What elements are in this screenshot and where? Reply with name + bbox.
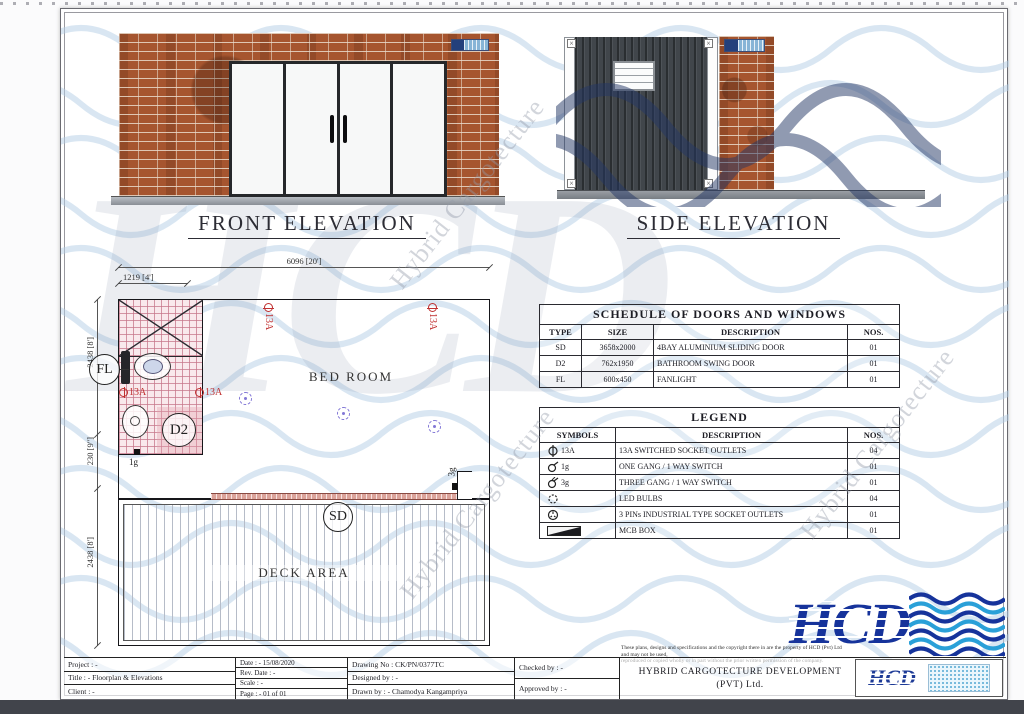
fanlight-leader-line — [119, 369, 129, 370]
corner-casting-icon: × — [567, 39, 576, 48]
socket-outlet-13a: 13A — [119, 387, 146, 398]
logo-dot-pattern — [928, 664, 990, 692]
one-gang-switch-icon — [547, 461, 559, 473]
title-block-project-column: Project : - Title : - Floorplan & Elevat… — [64, 658, 236, 699]
legend-row: 3 PINs INDUSTRIAL TYPE SOCKET OUTLETS 01 — [540, 507, 900, 523]
top-edge-artifact — [0, 2, 1024, 5]
hcd-logo-text: HCD — [789, 595, 909, 653]
approved-by-field: Approved by : - — [515, 679, 619, 700]
dim-wall-depth: 230 [9"] — [85, 437, 95, 465]
designed-by-field: Designed by : - — [348, 672, 514, 686]
sink-drain — [130, 416, 140, 426]
side-elevation-brick-column — [719, 36, 774, 190]
led-bulb-icon — [428, 420, 441, 433]
sign-logo-block — [725, 40, 738, 51]
deck-label: DECK AREA — [211, 565, 397, 581]
date-field: Date : - 15/08/2020 — [236, 658, 347, 668]
sliding-door-plan — [211, 493, 457, 500]
schedule-row: FL 600x450 FANLIGHT 01 — [540, 372, 900, 388]
corner-casting-icon: × — [567, 179, 576, 188]
side-facade-sign — [724, 39, 765, 52]
drawing-sheet: HCD FRONT ELEVATION × × × × — [60, 8, 1008, 700]
three-gang-switch-icon — [547, 477, 559, 489]
legend-row: 3g THREE GANG / 1 WAY SWITCH 01 — [540, 475, 900, 491]
socket-outlet-icon — [547, 445, 559, 457]
title-field: Title : - Floorplan & Elevations — [64, 672, 235, 686]
socket-outlet-icon — [264, 303, 273, 312]
checked-by-field: Checked by : - — [515, 658, 619, 679]
scale-field: Scale : - — [236, 679, 347, 689]
front-elevation-title: FRONT ELEVATION — [121, 211, 493, 239]
socket-outlet-icon — [195, 388, 204, 397]
rev-date-field: Rev. Date : - — [236, 668, 347, 678]
legend-row: LED BULBS 04 — [540, 491, 900, 507]
socket-outlet-13a: 13A — [427, 303, 438, 330]
title-block-drawing-column: Drawing No : CK/PN/0377TC Designed by : … — [348, 658, 515, 699]
screenshot-stage: HCD FRONT ELEVATION × × × × — [0, 0, 1024, 714]
company-name: HYBRID CARGOTECTURE DEVELOPMENT (PVT) Lt… — [624, 662, 856, 696]
led-bulb-icon — [547, 493, 559, 505]
legend-row: 13A 13A SWITCHED SOCKET OUTLETS 04 — [540, 443, 900, 459]
shower-area — [119, 300, 203, 357]
dim-line-vertical — [97, 299, 98, 646]
schedule-table: SCHEDULE OF DOORS AND WINDOWS TYPE SIZE … — [539, 304, 900, 388]
schedule-title: SCHEDULE OF DOORS AND WINDOWS — [540, 305, 900, 325]
bedroom-label: BED ROOM — [281, 369, 421, 385]
legend-table: LEGEND SYMBOLS DESCRIPTION NOS. 13A 13A … — [539, 407, 900, 539]
dim-line — [118, 267, 490, 268]
door-handle-icon — [343, 115, 347, 143]
socket-outlet-13a: 13A — [195, 387, 222, 398]
socket-outlet-icon — [119, 388, 128, 397]
door-panel-left — [286, 64, 337, 194]
schedule-row: SD 3658x2000 4BAY ALUMINIUM SLIDING DOOR… — [540, 340, 900, 356]
door-panel-right — [340, 64, 391, 194]
mcb-box-icon — [547, 526, 581, 536]
hcd-logo-waves-icon — [909, 592, 1005, 656]
legend-title: LEGEND — [540, 408, 900, 428]
corner-casting-icon: × — [704, 39, 713, 48]
project-field: Project : - — [64, 658, 235, 672]
door-panel-fixed-left — [232, 64, 283, 194]
dim-total-width: 6096 [20'] — [118, 256, 490, 266]
bathroom-door-tag: D2 — [162, 413, 196, 447]
container-corner-post-left — [564, 37, 575, 190]
hcd-logo: HCD — [789, 586, 1007, 662]
three-gang-switch-label: 3g — [447, 468, 457, 477]
drawn-by-field: Drawn by : - Chamodya Kangampriya — [348, 685, 514, 699]
fanlight-tag: FL — [89, 354, 120, 385]
drawing-no-field: Drawing No : CK/PN/0377TC — [348, 658, 514, 672]
wall-step — [457, 471, 472, 499]
client-field: Client : - — [64, 685, 235, 699]
door-handle-icon — [330, 115, 334, 143]
sign-logo-block — [452, 40, 464, 50]
front-elevation-plinth — [111, 196, 505, 205]
title-block-logo-box: HCD — [855, 659, 1003, 697]
sliding-door-tag: SD — [323, 502, 353, 532]
corner-casting-icon: × — [704, 179, 713, 188]
bathroom-vanity — [121, 351, 130, 384]
title-block-date-column: Date : - 15/08/2020 Rev. Date : - Scale … — [236, 658, 348, 699]
dim-line — [118, 283, 188, 284]
dim-bathroom-width: 1219 [4'] — [123, 272, 154, 282]
fanlight-louver-window — [613, 61, 655, 91]
container-corrugated-wall — [575, 37, 707, 190]
led-bulb-icon — [337, 407, 350, 420]
legend-row: MCB BOX 01 — [540, 523, 900, 539]
sign-text-block — [464, 40, 488, 50]
front-facade-sign — [451, 39, 489, 51]
led-bulb-icon — [239, 392, 252, 405]
sign-text-block — [738, 40, 764, 51]
hcd-logo-small: HCD — [868, 665, 916, 691]
door-panel-fixed-right — [393, 64, 444, 194]
one-gang-switch-icon — [134, 449, 140, 455]
side-elevation-ground-line — [557, 190, 925, 199]
bottom-edge-bar — [0, 700, 1024, 714]
socket-outlet-13a: 13A — [263, 303, 274, 330]
title-block-approval-column: Checked by : - Approved by : - — [515, 658, 620, 699]
dim-deck-depth: 2438 [8'] — [85, 537, 95, 568]
container-corner-post-right — [707, 37, 718, 190]
one-gang-switch-label: 1g — [129, 457, 138, 467]
socket-outlet-icon — [428, 303, 437, 312]
legend-row: 1g ONE GANG / 1 WAY SWITCH 01 — [540, 459, 900, 475]
page-field: Page : - 01 of 01 — [236, 689, 347, 699]
side-elevation-title: SIDE ELEVATION — [566, 211, 901, 239]
toilet-bowl — [143, 359, 163, 374]
sliding-door-4bay — [229, 61, 447, 197]
schedule-row: D2 762x1950 BATHROOM SWING DOOR 01 — [540, 356, 900, 372]
industrial-socket-icon — [547, 509, 559, 521]
